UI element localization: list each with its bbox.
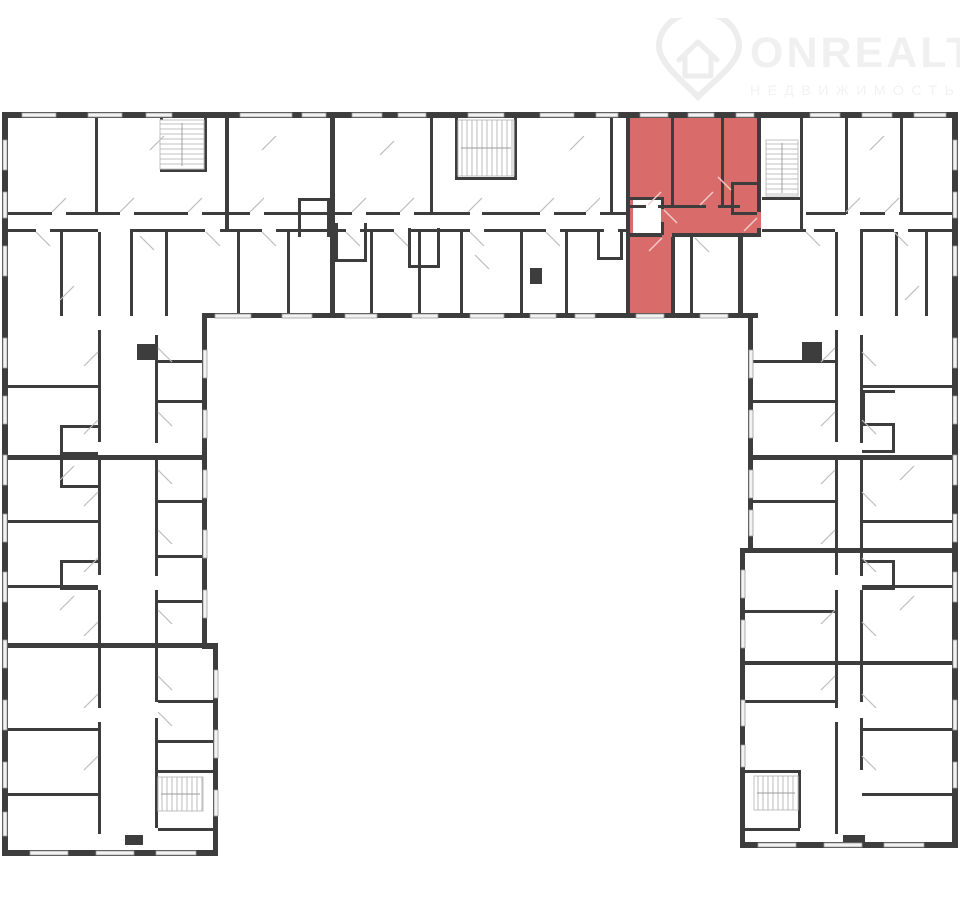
wall [366, 212, 400, 215]
wall [5, 385, 98, 388]
window [914, 113, 946, 117]
wall [8, 212, 52, 215]
window [30, 851, 68, 855]
window [3, 762, 7, 788]
wall [98, 590, 101, 708]
window [953, 762, 957, 788]
window [530, 314, 556, 318]
window [214, 670, 218, 698]
window [749, 470, 753, 498]
window [741, 700, 745, 726]
window [3, 514, 7, 542]
wall [835, 330, 838, 442]
wall [335, 223, 338, 262]
wall [762, 229, 806, 232]
door-swing [870, 136, 884, 150]
wall [370, 232, 373, 316]
wall [731, 212, 757, 215]
wall [862, 390, 895, 393]
wall [753, 500, 835, 503]
wall [860, 232, 863, 316]
walls-layer [2, 112, 958, 856]
wall [740, 700, 835, 703]
window [282, 314, 312, 318]
wall [5, 643, 218, 648]
windows-layer [3, 113, 957, 855]
window [203, 350, 207, 378]
wall [455, 177, 517, 180]
wall [690, 237, 693, 316]
door-swing [158, 348, 172, 362]
window [884, 843, 924, 847]
wall [800, 118, 803, 232]
window [741, 745, 745, 767]
wall [806, 212, 846, 215]
wall [50, 229, 98, 232]
wall [814, 229, 835, 232]
window [3, 455, 7, 485]
wall [565, 232, 568, 316]
wall [597, 257, 623, 260]
door-swing [120, 198, 134, 212]
window [953, 140, 957, 170]
door-swing [158, 470, 172, 484]
wall [98, 232, 101, 316]
wall [620, 232, 623, 260]
wall [672, 233, 761, 237]
window [146, 113, 172, 117]
window [214, 730, 218, 758]
window [953, 246, 957, 276]
wall [202, 212, 250, 215]
wall [626, 233, 662, 237]
window [3, 812, 7, 836]
window [636, 314, 664, 318]
window [203, 470, 207, 498]
elevators-layer [125, 268, 865, 845]
wall [618, 229, 626, 232]
wall [335, 259, 367, 262]
door-swing [380, 141, 394, 155]
window [862, 113, 892, 117]
wall [158, 828, 213, 831]
window [596, 113, 618, 117]
wall [60, 560, 63, 590]
floor-plan [0, 0, 960, 910]
wall [158, 600, 202, 603]
wall [740, 770, 800, 773]
elevator-block [125, 835, 143, 845]
window [3, 140, 7, 170]
elevator-block [530, 268, 542, 284]
wall [237, 232, 240, 316]
door-swing [84, 622, 98, 636]
door-swing [821, 470, 835, 484]
door-swing [540, 198, 554, 212]
wall [630, 197, 664, 200]
wall [155, 718, 158, 770]
wall [298, 198, 330, 201]
window [3, 700, 7, 730]
wall [130, 229, 205, 232]
wall [60, 560, 98, 563]
wall [364, 223, 367, 262]
window [470, 314, 504, 318]
window [203, 530, 207, 558]
window [810, 113, 840, 117]
door-swing [821, 348, 835, 362]
door-swing [262, 232, 276, 246]
door-swing [262, 136, 276, 150]
window [302, 113, 326, 117]
wall [287, 232, 290, 316]
window [398, 113, 426, 117]
wall [753, 455, 952, 460]
wall [298, 198, 301, 237]
window [953, 338, 957, 368]
wall [600, 212, 626, 215]
wall [860, 212, 885, 215]
wall [658, 205, 706, 208]
window [3, 396, 7, 424]
wall [661, 197, 664, 209]
door-swing [158, 676, 172, 690]
door-swing [158, 530, 172, 544]
door-swing [821, 412, 835, 426]
window [412, 314, 438, 318]
wall [560, 229, 604, 232]
wall [482, 212, 540, 215]
door-swing [862, 492, 876, 506]
wall [738, 237, 743, 318]
wall [899, 212, 953, 215]
window [640, 113, 668, 117]
wall [5, 793, 98, 796]
window [22, 113, 56, 117]
wall [158, 740, 213, 743]
wall [5, 728, 98, 731]
wall [330, 118, 335, 316]
wall [408, 265, 440, 268]
door-swing [586, 198, 600, 212]
door-swing [885, 198, 899, 212]
door-swing [188, 198, 202, 212]
wall [860, 335, 863, 443]
wall [671, 118, 674, 206]
wall [860, 229, 894, 232]
wall [98, 455, 101, 575]
wall [460, 232, 463, 316]
wall [60, 587, 98, 590]
wall [554, 212, 586, 215]
wall [327, 198, 330, 237]
wall [165, 232, 168, 316]
window [953, 514, 957, 542]
window [953, 192, 957, 218]
wall [60, 452, 98, 455]
window [953, 455, 957, 485]
window [741, 620, 745, 648]
door-swing [206, 232, 220, 246]
wall [5, 520, 98, 523]
elevator-block [802, 342, 822, 360]
door-swing [84, 756, 98, 770]
wall [437, 228, 440, 268]
window [3, 192, 7, 218]
window [214, 790, 218, 816]
door-swing [821, 530, 835, 544]
wall [908, 229, 953, 232]
wall [220, 229, 262, 232]
window [3, 246, 7, 276]
door-swing [84, 352, 98, 366]
wall [158, 770, 213, 773]
wall [895, 232, 898, 316]
window [345, 314, 377, 318]
window [575, 314, 595, 318]
wall [408, 228, 411, 268]
door-swing [140, 236, 154, 250]
window [824, 843, 862, 847]
wall [740, 661, 952, 665]
door-swing [546, 232, 560, 246]
door-swing [806, 232, 820, 246]
door-swing [250, 198, 264, 212]
wall [862, 793, 952, 796]
wall [718, 205, 740, 208]
wall [414, 212, 470, 215]
wall [862, 520, 952, 523]
wall [835, 232, 838, 316]
wall [158, 400, 202, 403]
door-swing [84, 694, 98, 708]
door-swing [695, 238, 709, 252]
door-swing [905, 286, 919, 300]
wall [484, 229, 546, 232]
wall [60, 460, 63, 488]
window [203, 410, 207, 438]
wall [731, 182, 734, 215]
window [540, 113, 574, 117]
window [700, 314, 728, 318]
window [3, 338, 7, 368]
wall [95, 118, 98, 214]
wall [98, 722, 101, 834]
wall [158, 360, 202, 363]
wall [860, 590, 863, 702]
window [749, 350, 753, 378]
window [3, 572, 7, 602]
door-swing [158, 412, 172, 426]
wall [892, 560, 895, 590]
wall [418, 232, 421, 316]
door-swing [570, 136, 584, 150]
window [749, 410, 753, 438]
wall [134, 212, 188, 215]
wall [130, 232, 133, 316]
window [749, 510, 753, 536]
door-swing [352, 198, 366, 212]
window [88, 113, 122, 117]
wall [5, 455, 205, 460]
door-swing [862, 756, 876, 770]
wall [60, 485, 98, 488]
door-swing [394, 232, 408, 246]
door-swing [346, 232, 360, 246]
wall [753, 400, 835, 403]
wall [762, 197, 803, 200]
wall [925, 232, 928, 316]
wall [845, 118, 848, 214]
window [468, 113, 504, 117]
door-swing [470, 232, 484, 246]
window [156, 851, 196, 855]
wall [757, 112, 761, 212]
elevator-block [137, 344, 157, 360]
wall [158, 500, 202, 503]
door-swing [52, 198, 66, 212]
window [688, 113, 714, 117]
highlight-cutout [633, 200, 661, 233]
window [3, 640, 7, 668]
wall [892, 423, 895, 453]
wall [155, 458, 158, 576]
window [736, 113, 754, 117]
window [215, 314, 251, 318]
wall [264, 212, 352, 215]
window [203, 590, 207, 618]
window [953, 572, 957, 602]
wall [862, 385, 952, 388]
door-swing [475, 255, 489, 269]
door-swing [400, 198, 414, 212]
wall [158, 555, 202, 558]
door-swing [468, 198, 482, 212]
wall [626, 112, 630, 316]
window [741, 570, 745, 598]
window [953, 640, 957, 668]
window [953, 700, 957, 730]
wall [740, 610, 835, 613]
wall [835, 722, 838, 834]
door-swing [862, 622, 876, 636]
window [758, 843, 796, 847]
wall [520, 232, 523, 316]
wall [60, 232, 63, 316]
door-swing [846, 198, 860, 212]
door-swing [158, 610, 172, 624]
door-swing [900, 466, 914, 480]
door-swing [36, 232, 50, 246]
wall [862, 450, 895, 453]
wall [862, 390, 865, 423]
wall [158, 700, 213, 703]
wall [900, 118, 903, 214]
door-swing [900, 596, 914, 610]
window [96, 851, 134, 855]
wall [60, 425, 63, 455]
wall [671, 237, 675, 316]
door-swing [821, 676, 835, 690]
door-swing [862, 420, 876, 434]
wall [860, 718, 863, 770]
door-swing [60, 596, 74, 610]
wall [740, 548, 952, 553]
door-swing [158, 712, 172, 726]
wall [8, 229, 36, 232]
wall [66, 212, 120, 215]
wall [628, 205, 646, 208]
door-swing [84, 492, 98, 506]
wall [98, 330, 101, 442]
door-swing [862, 694, 876, 708]
wall [610, 118, 613, 214]
wall [721, 118, 724, 206]
wall [862, 587, 895, 590]
wall [862, 728, 952, 731]
wall [835, 590, 838, 708]
wall [597, 232, 600, 260]
wall [740, 828, 800, 831]
wall [731, 182, 757, 185]
window [352, 113, 382, 117]
floorplan-page: ONREALT НЕДВИЖИМОСТЬ [0, 0, 960, 910]
wall [430, 118, 433, 214]
window [953, 396, 957, 424]
wall [835, 455, 838, 575]
window [240, 113, 292, 117]
door-swing [862, 352, 876, 366]
